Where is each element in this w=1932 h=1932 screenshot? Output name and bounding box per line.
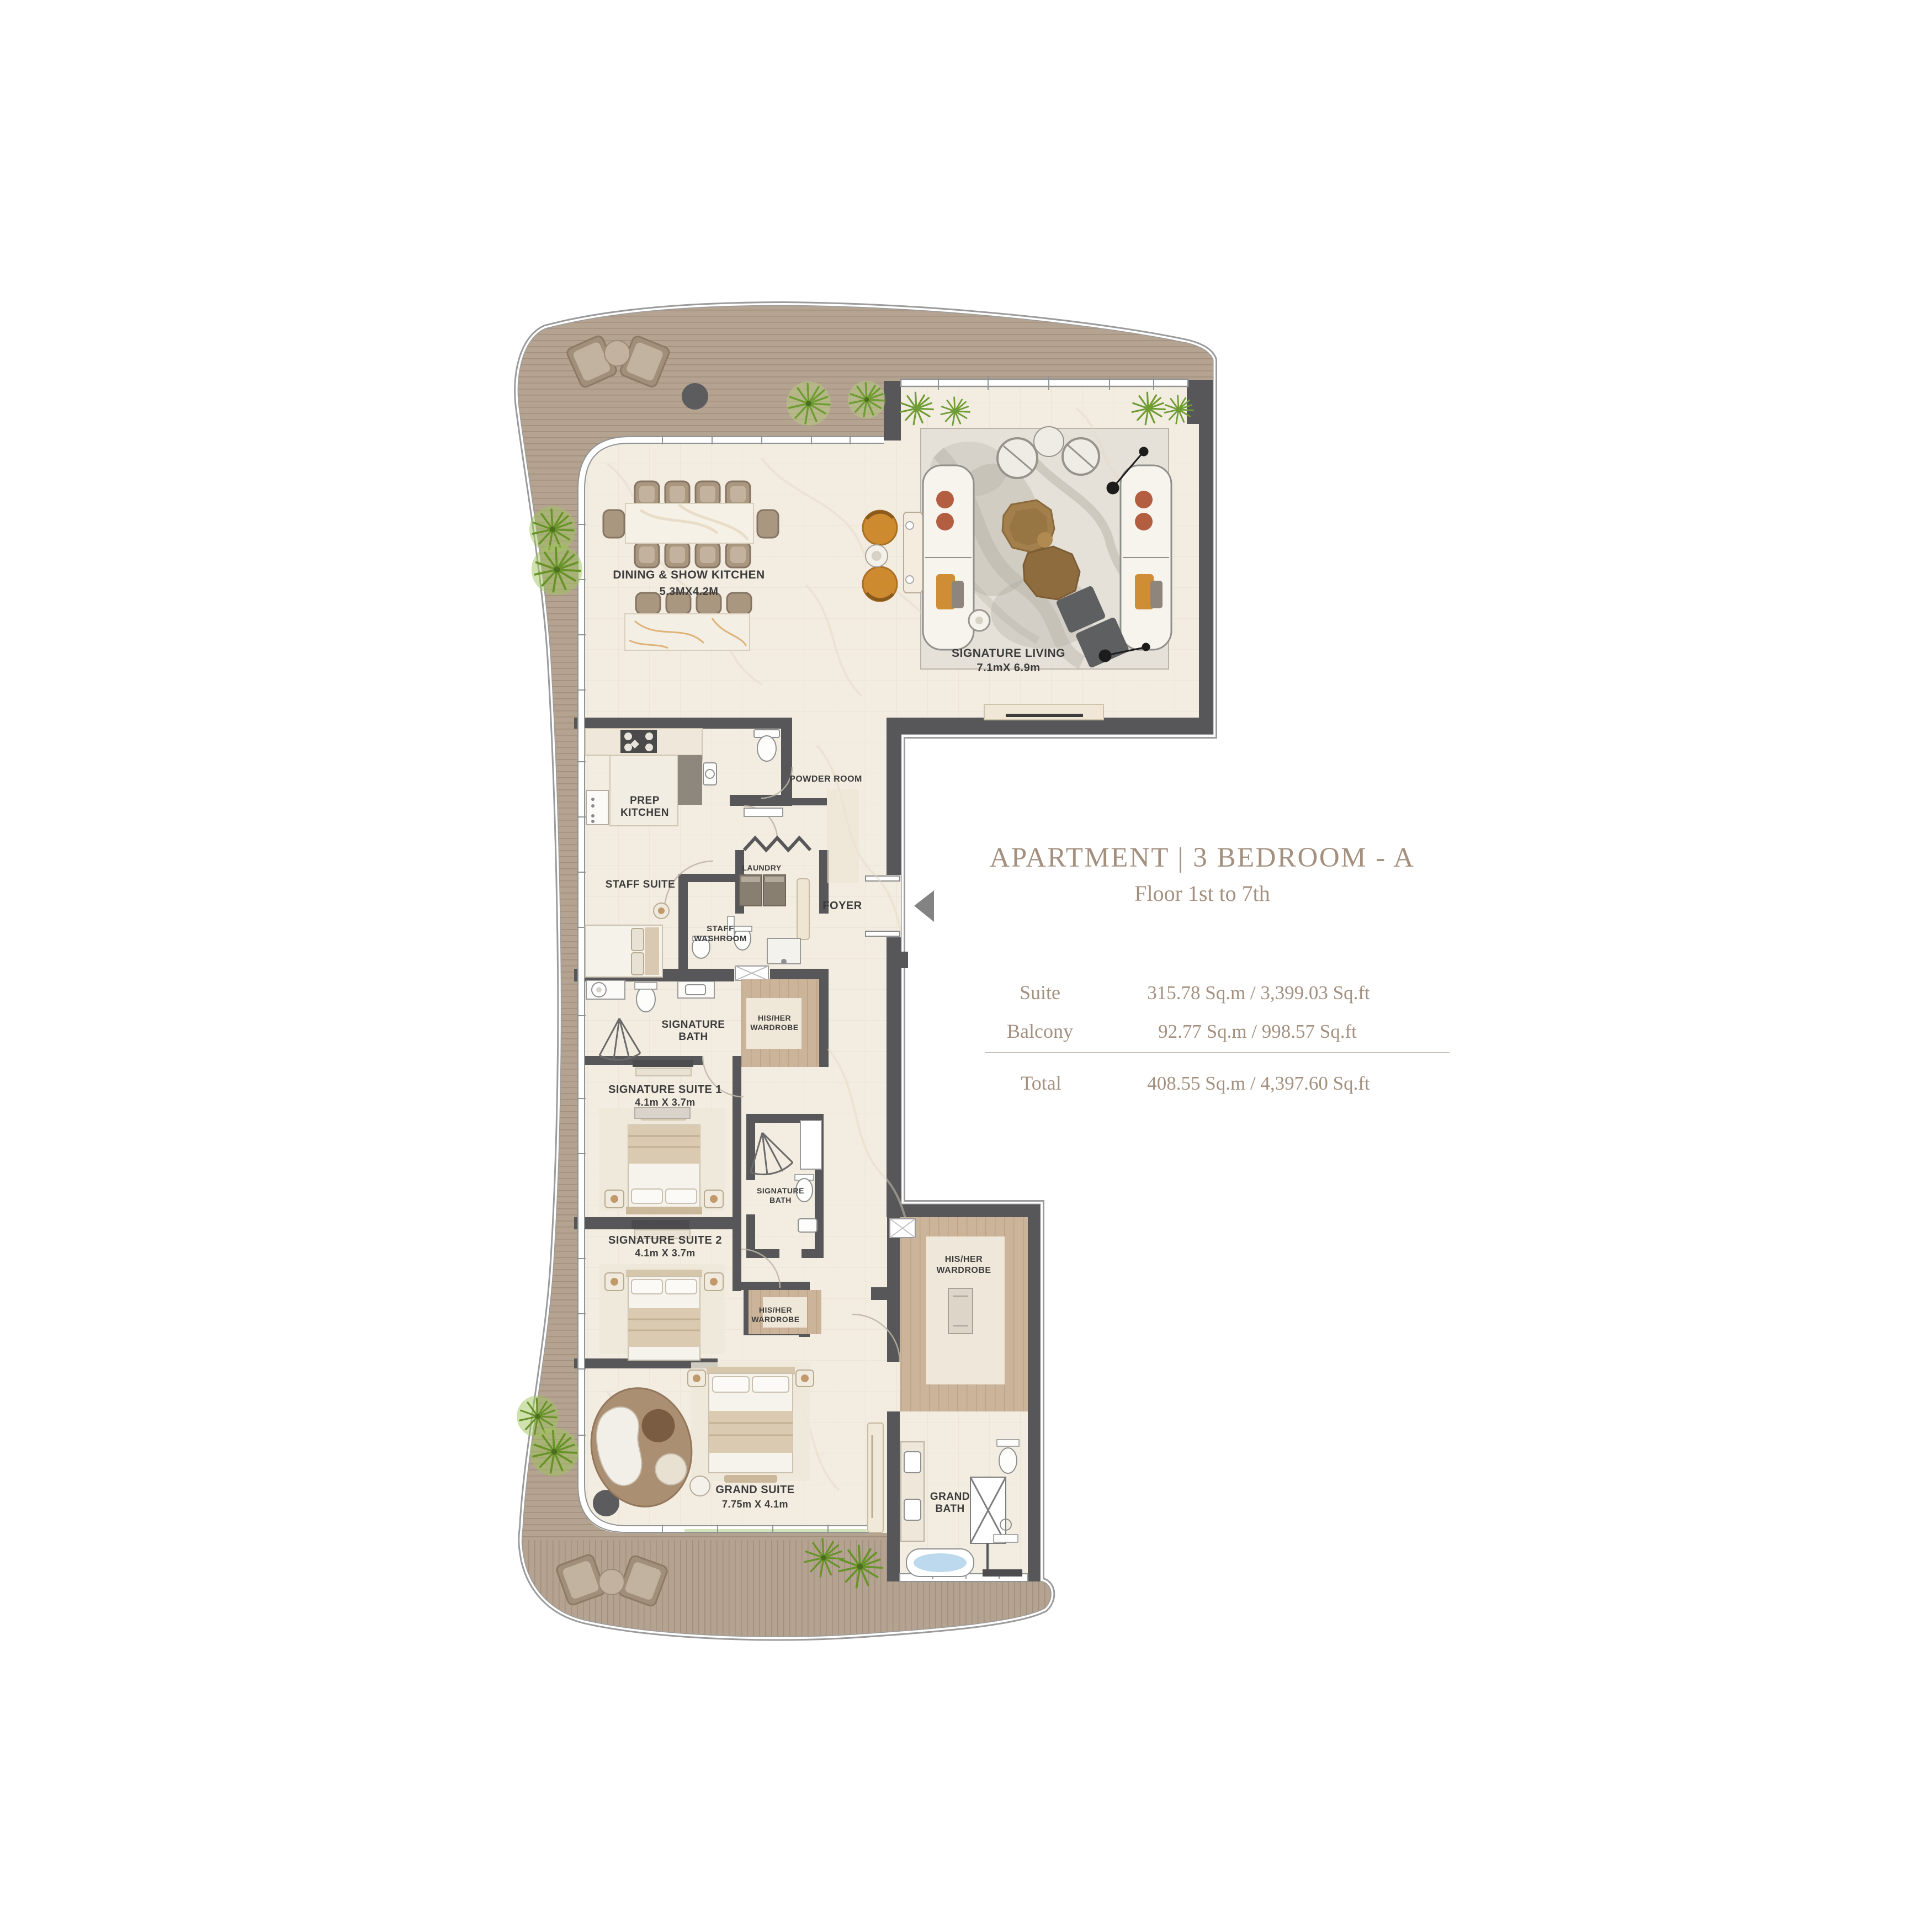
svg-text:WARDROBE: WARDROBE xyxy=(936,1266,991,1275)
svg-text:7.1mX 6.9m: 7.1mX 6.9m xyxy=(976,662,1040,674)
svg-text:7.75m X 4.1m: 7.75m X 4.1m xyxy=(722,1499,788,1510)
svg-text:4.1m X 3.7m: 4.1m X 3.7m xyxy=(635,1248,696,1259)
svg-text:SIGNATURE LIVING: SIGNATURE LIVING xyxy=(952,647,1065,660)
svg-text:GRAND SUITE: GRAND SUITE xyxy=(715,1484,794,1496)
svg-text:Floor 1st to 7th: Floor 1st to 7th xyxy=(1134,881,1270,906)
svg-text:5.3MX4.2M: 5.3MX4.2M xyxy=(660,586,719,598)
svg-text:WARDROBE: WARDROBE xyxy=(750,1023,798,1032)
svg-text:408.55 Sq.m / 4,397.60 Sq.ft: 408.55 Sq.m / 4,397.60 Sq.ft xyxy=(1147,1073,1370,1094)
svg-text:BATH: BATH xyxy=(769,1196,792,1204)
svg-text:LAUNDRY: LAUNDRY xyxy=(742,863,782,872)
svg-text:STAFF SUITE: STAFF SUITE xyxy=(606,879,676,890)
svg-text:FOYER: FOYER xyxy=(822,900,862,912)
svg-text:4.1m X 3.7m: 4.1m X 3.7m xyxy=(635,1097,696,1108)
svg-text:APARTMENT | 3 BEDROOM - A: APARTMENT | 3 BEDROOM - A xyxy=(990,842,1415,873)
svg-text:Suite: Suite xyxy=(1020,981,1060,1004)
svg-text:GRAND: GRAND xyxy=(930,1491,970,1503)
svg-text:Balcony: Balcony xyxy=(1007,1020,1073,1042)
svg-text:HIS/HER: HIS/HER xyxy=(945,1255,983,1264)
svg-text:315.78 Sq.m / 3,399.03 Sq.ft: 315.78 Sq.m / 3,399.03 Sq.ft xyxy=(1147,982,1370,1004)
svg-text:SIGNATURE SUITE 1: SIGNATURE SUITE 1 xyxy=(608,1084,722,1096)
svg-text:SIGNATURE: SIGNATURE xyxy=(757,1186,804,1195)
svg-text:SIGNATURE SUITE 2: SIGNATURE SUITE 2 xyxy=(608,1234,722,1246)
svg-text:POWDER ROOM: POWDER ROOM xyxy=(789,774,862,784)
svg-text:HIS/HER: HIS/HER xyxy=(759,1305,792,1314)
svg-text:SIGNATURE: SIGNATURE xyxy=(662,1019,725,1031)
svg-text:BATH: BATH xyxy=(678,1031,708,1043)
svg-text:HIS/HER: HIS/HER xyxy=(758,1013,791,1022)
svg-text:DINING & SHOW KITCHEN: DINING & SHOW KITCHEN xyxy=(613,569,765,581)
svg-text:Total: Total xyxy=(1021,1072,1061,1094)
svg-text:WARDROBE: WARDROBE xyxy=(751,1315,799,1324)
svg-text:BATH: BATH xyxy=(935,1503,964,1515)
svg-text:STAFF: STAFF xyxy=(707,924,734,933)
svg-text:92.77 Sq.m / 998.57 Sq.ft: 92.77 Sq.m / 998.57 Sq.ft xyxy=(1158,1021,1357,1042)
svg-text:PREP: PREP xyxy=(630,795,660,806)
svg-text:KITCHEN: KITCHEN xyxy=(620,807,669,819)
svg-text:WASHROOM: WASHROOM xyxy=(694,934,747,943)
